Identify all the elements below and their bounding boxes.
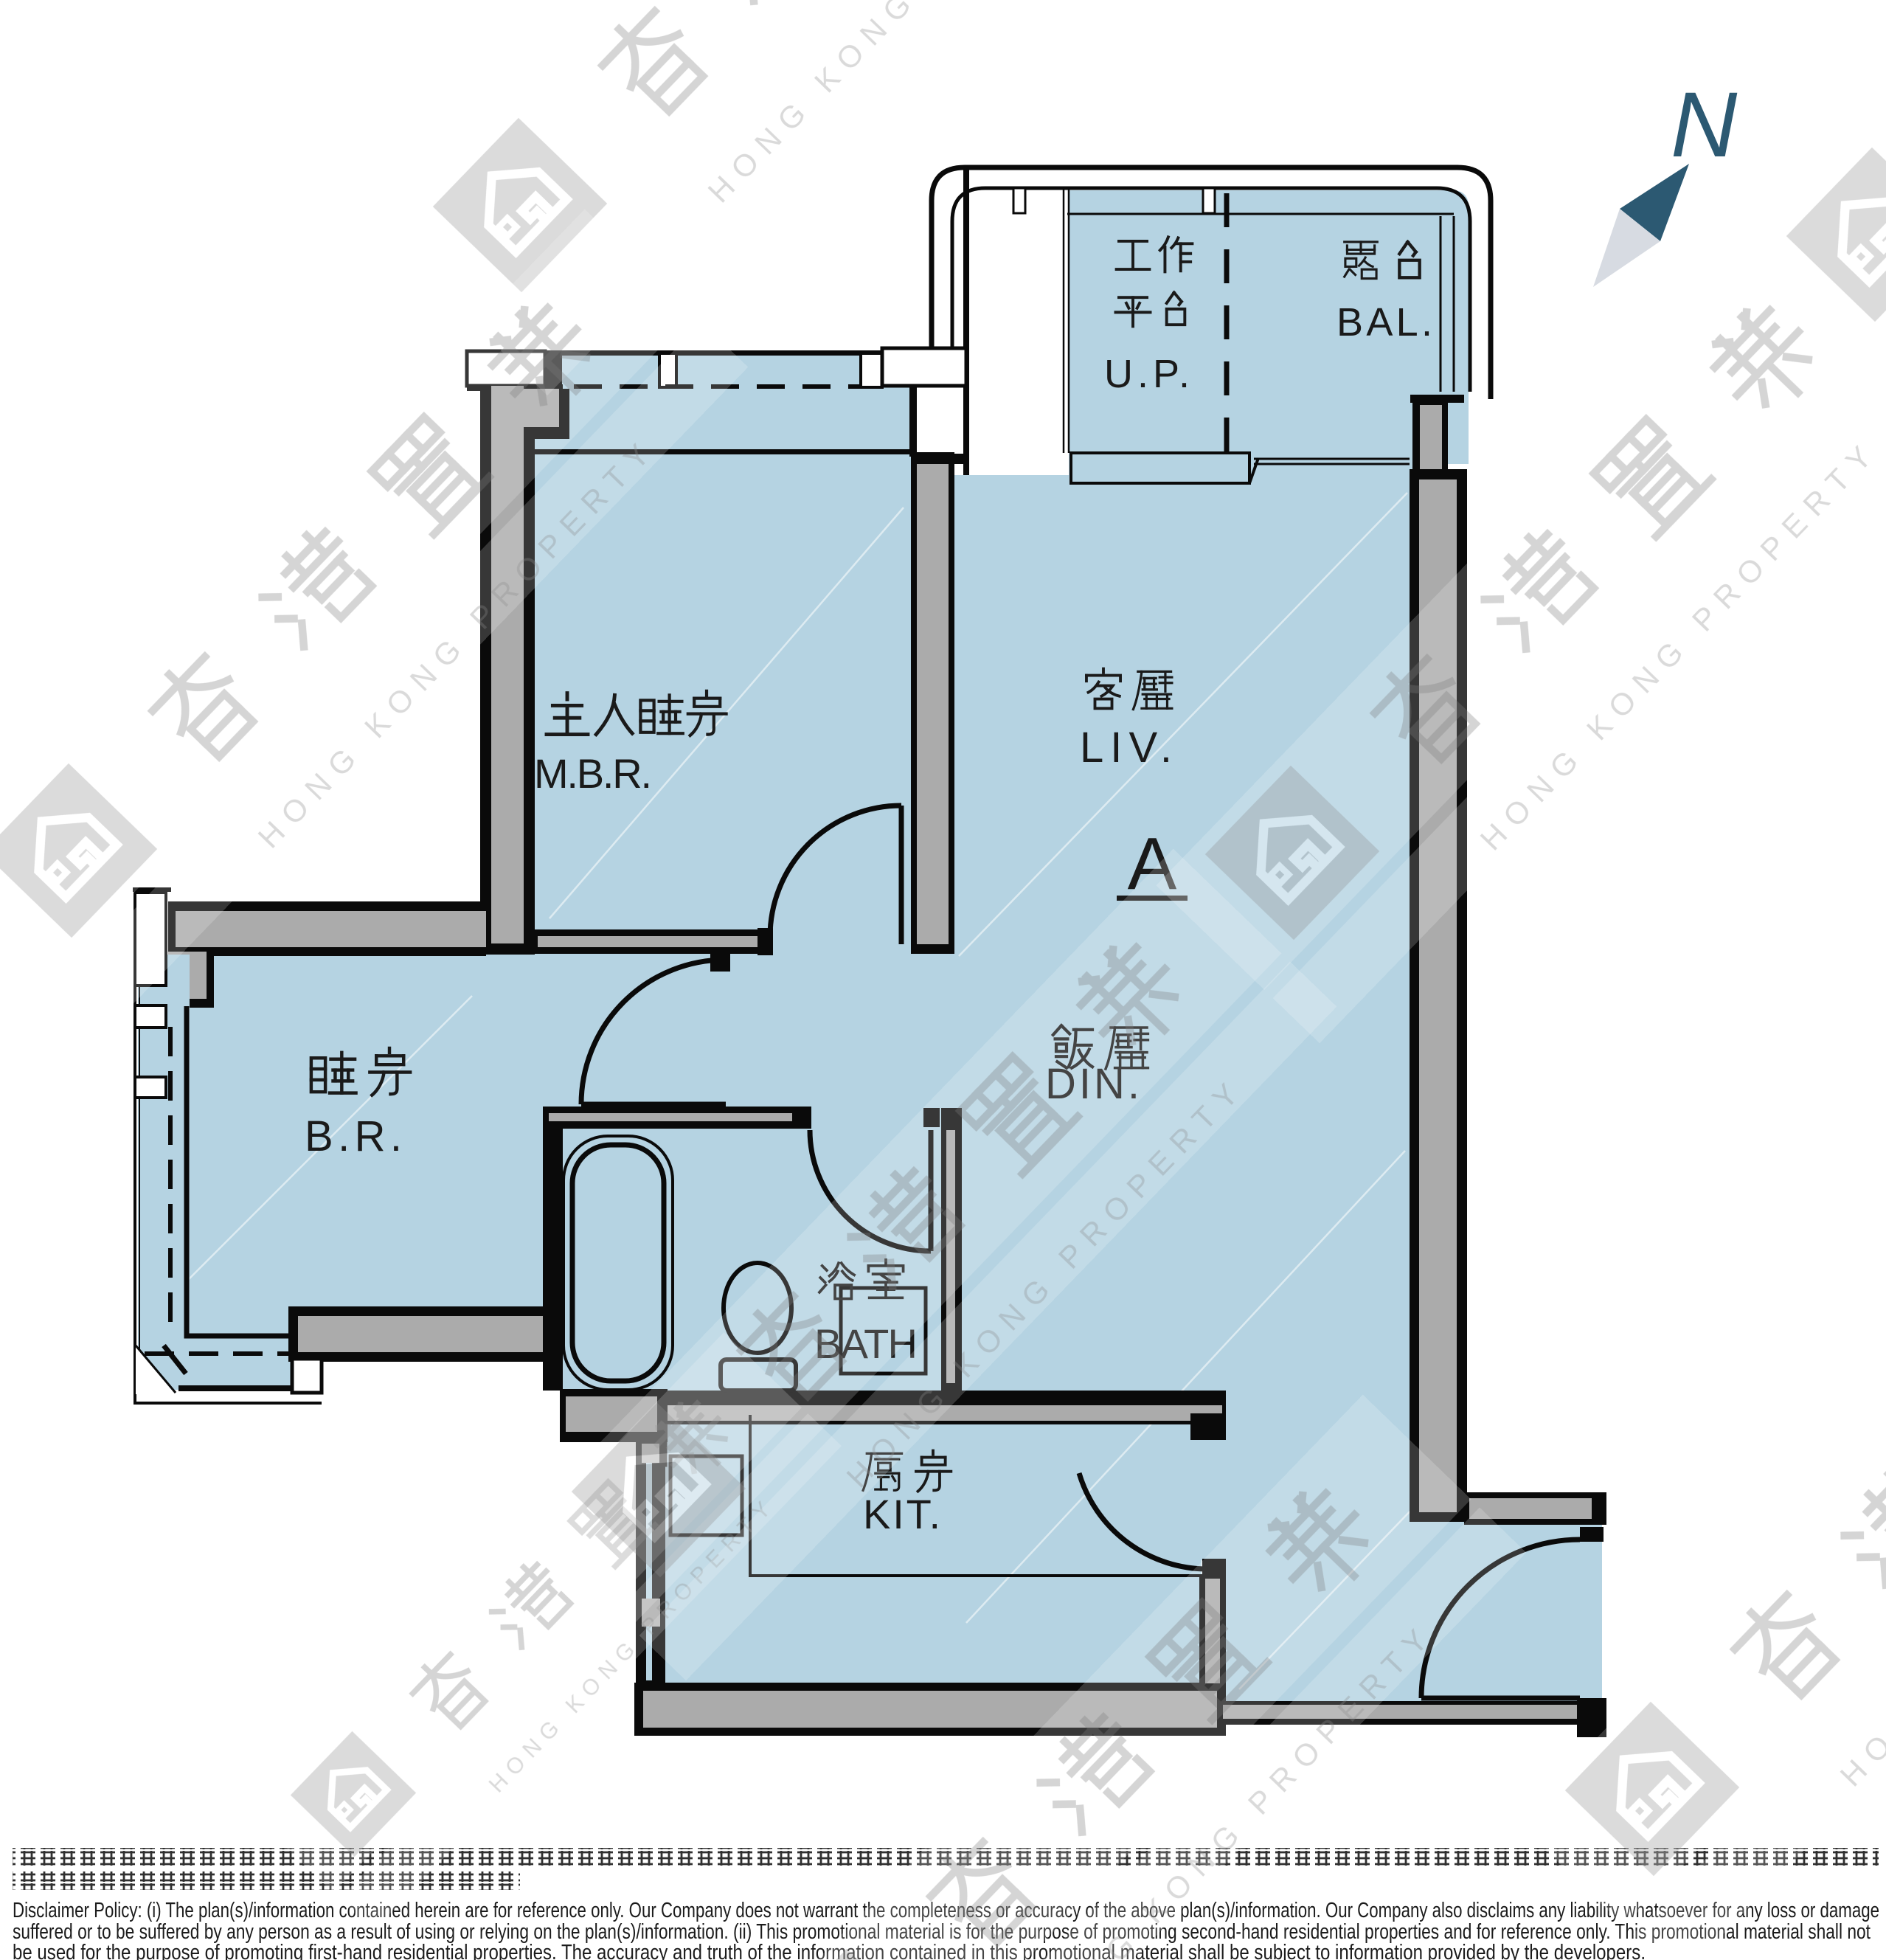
svg-text:N: N (1671, 74, 1738, 176)
svg-text:KIT.: KIT. (863, 1491, 940, 1537)
svg-text:BAL.: BAL. (1337, 300, 1432, 344)
svg-text:M.B.R.: M.B.R. (534, 750, 652, 797)
